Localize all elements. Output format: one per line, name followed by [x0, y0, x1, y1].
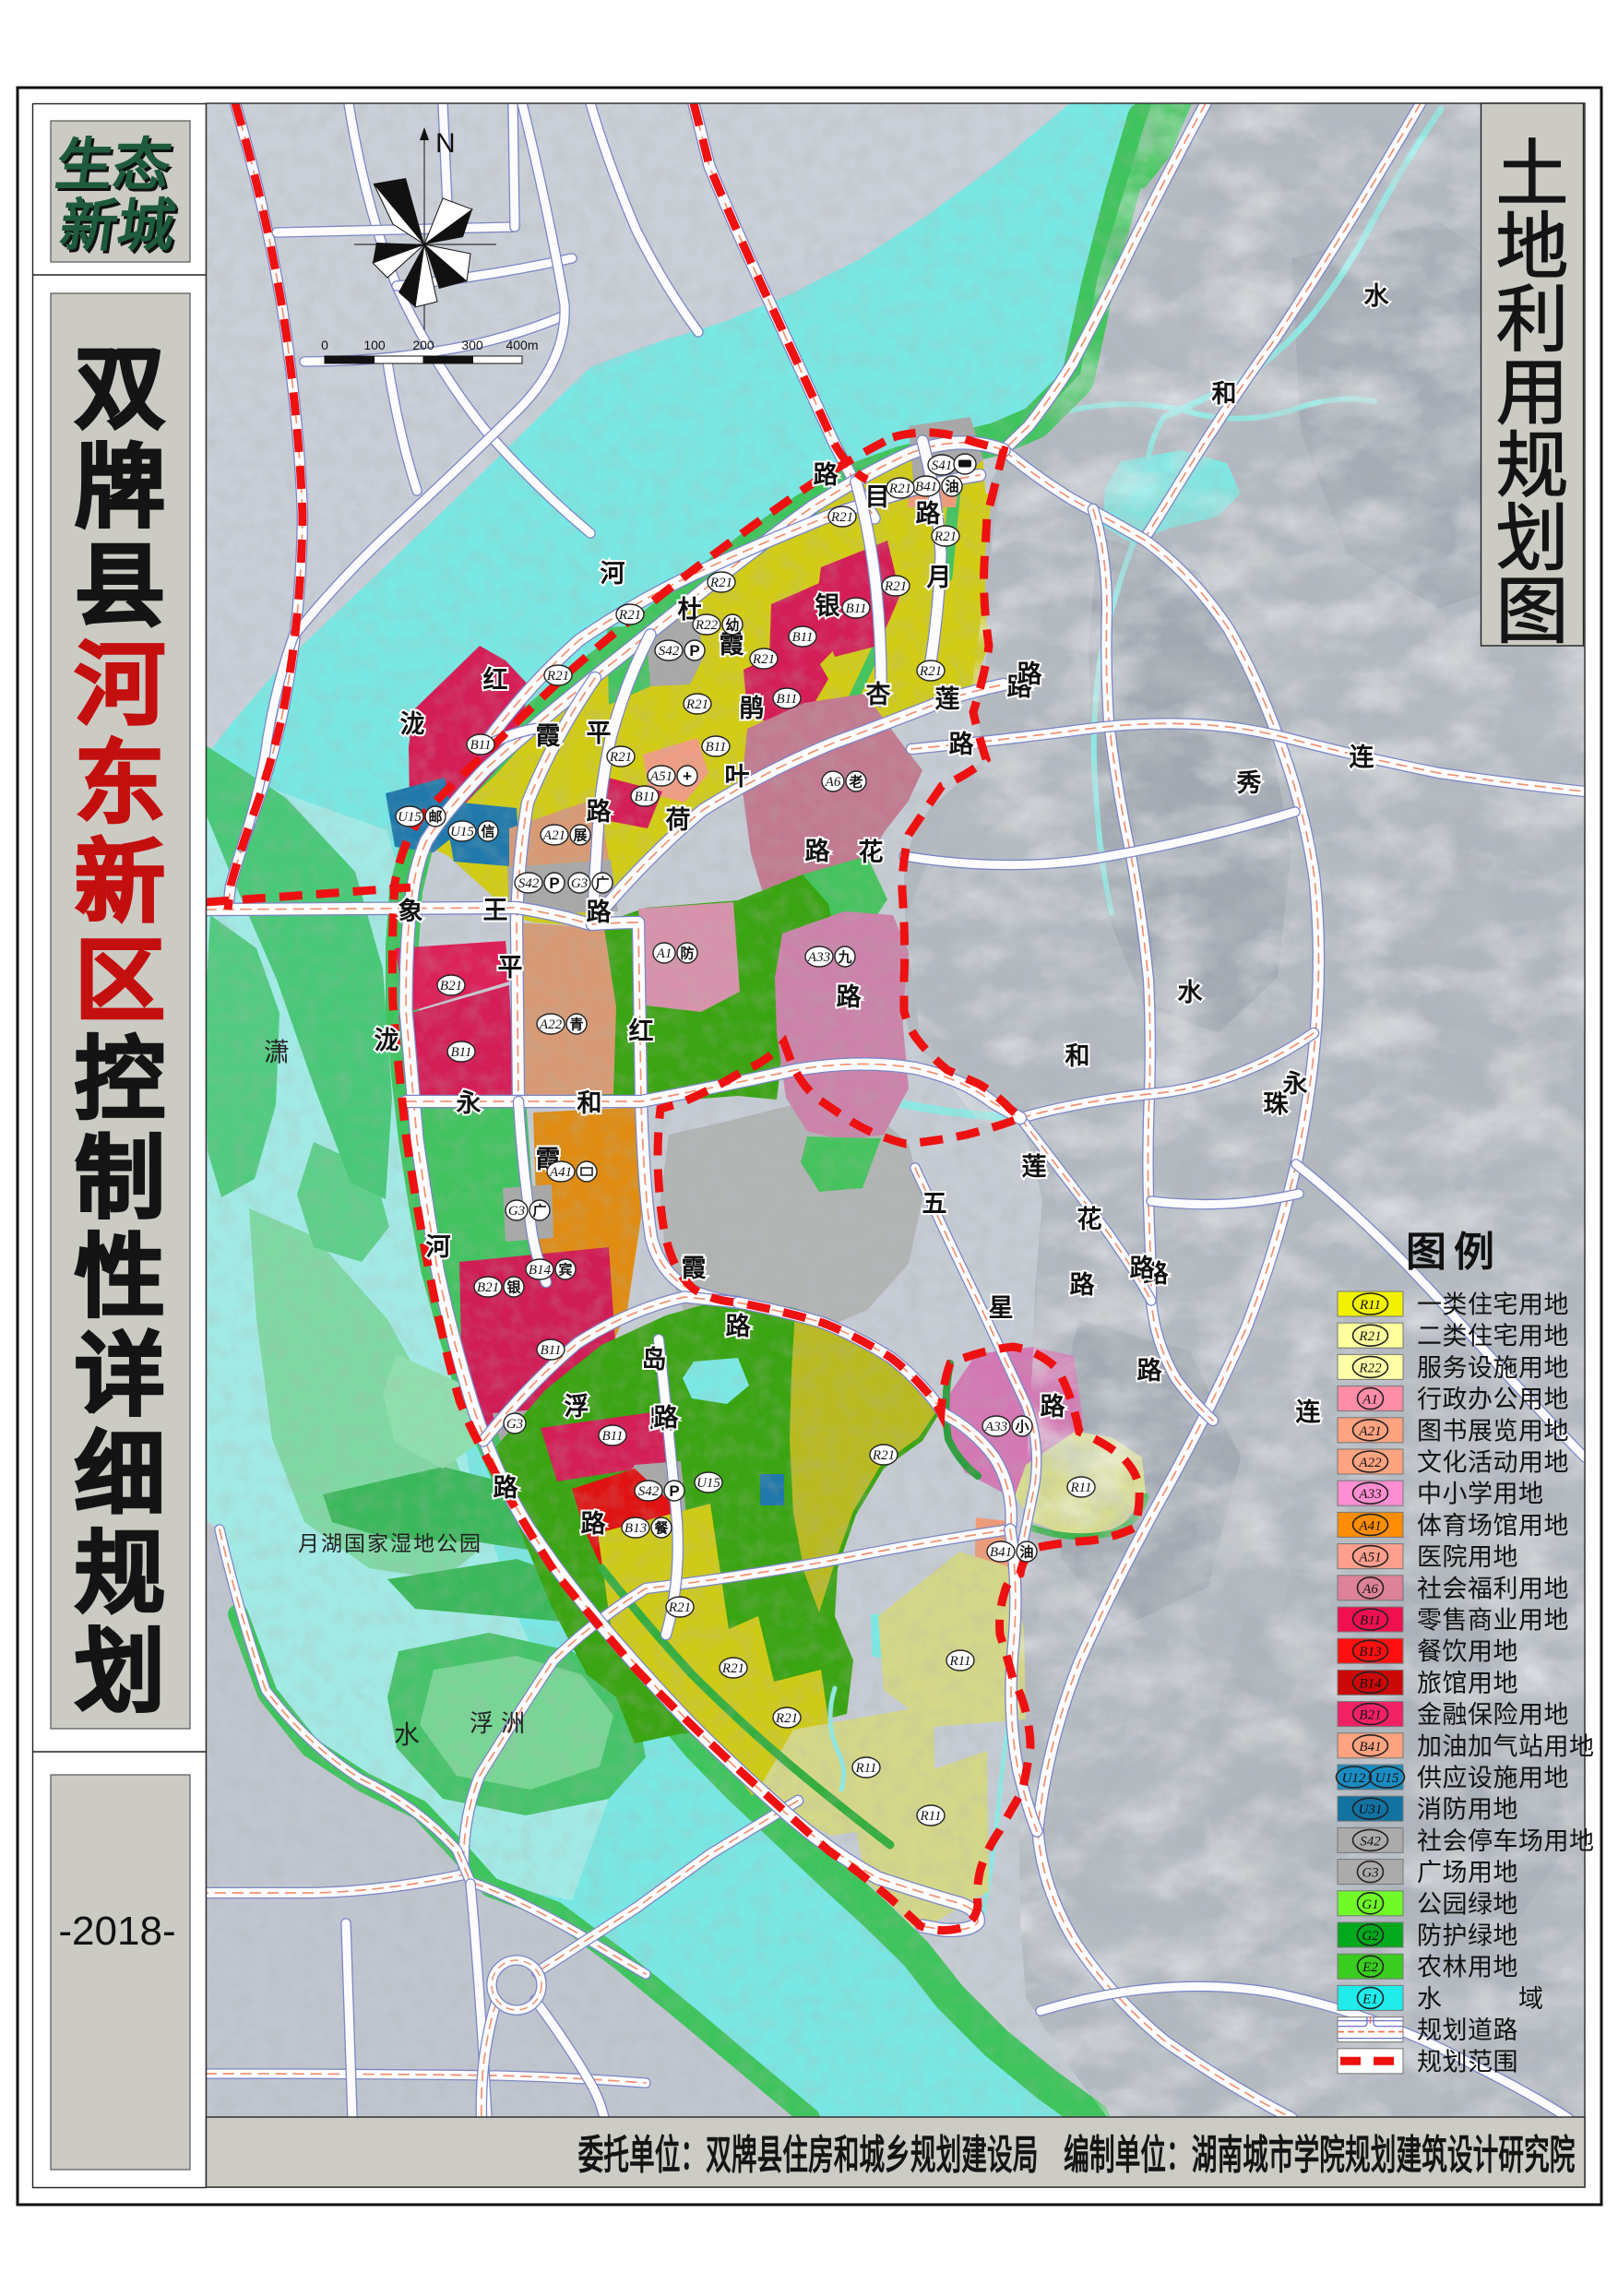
svg-text:信: 信	[481, 824, 494, 840]
svg-text:B41: B41	[1359, 1740, 1381, 1755]
svg-text:红: 红	[629, 1017, 654, 1045]
svg-text:A22: A22	[1358, 1456, 1382, 1470]
svg-text:P: P	[549, 874, 559, 892]
svg-text:B11: B11	[634, 790, 655, 804]
svg-text:R21: R21	[618, 608, 641, 623]
svg-text:B21: B21	[1359, 1708, 1381, 1723]
svg-text:细: 细	[75, 1423, 165, 1525]
svg-text:和: 和	[1065, 1042, 1090, 1070]
svg-text:农林用地: 农林用地	[1417, 1954, 1518, 1981]
svg-text:银: 银	[506, 1279, 521, 1296]
svg-text:连: 连	[1296, 1398, 1322, 1426]
svg-text:规划范围: 规划范围	[1417, 2048, 1518, 2076]
svg-text:油: 油	[1019, 1544, 1033, 1561]
svg-text:宾: 宾	[558, 1262, 572, 1279]
svg-text:幼: 幼	[725, 617, 739, 634]
svg-text:文化活动用地: 文化活动用地	[1417, 1449, 1569, 1477]
svg-text:路: 路	[1130, 1254, 1156, 1282]
svg-text:G3: G3	[506, 1417, 523, 1432]
svg-text:体育场馆用地: 体育场馆用地	[1417, 1512, 1569, 1540]
svg-text:B11: B11	[845, 601, 866, 616]
svg-text:200: 200	[412, 338, 434, 352]
svg-text:B41: B41	[915, 480, 937, 494]
svg-text:P: P	[669, 1482, 679, 1500]
svg-text:展: 展	[573, 828, 587, 844]
svg-text:B11: B11	[540, 1343, 561, 1358]
svg-text:服务设施用地: 服务设施用地	[1417, 1354, 1569, 1382]
svg-text:秀: 秀	[1236, 769, 1262, 797]
svg-text:餐饮用地: 餐饮用地	[1417, 1638, 1518, 1666]
svg-text:双: 双	[75, 338, 165, 439]
svg-text:九: 九	[837, 949, 851, 966]
svg-text:路: 路	[654, 1403, 680, 1432]
svg-text:路: 路	[587, 898, 613, 926]
svg-text:A6: A6	[825, 775, 841, 790]
svg-text:红: 红	[483, 665, 508, 694]
svg-text:A51: A51	[1358, 1551, 1381, 1565]
svg-text:R21: R21	[609, 750, 632, 765]
svg-text:N: N	[435, 128, 456, 159]
svg-text:叶: 叶	[725, 763, 750, 791]
svg-text:制: 制	[75, 1127, 165, 1229]
svg-text:R21: R21	[775, 1711, 798, 1726]
svg-text:+: +	[683, 767, 692, 785]
svg-text:医院用地: 医院用地	[1417, 1543, 1518, 1571]
svg-text:水: 水	[1364, 282, 1390, 310]
svg-text:地: 地	[1496, 206, 1569, 288]
svg-text:油: 油	[945, 479, 958, 495]
svg-text:新: 新	[75, 831, 165, 933]
svg-text:永: 永	[456, 1089, 482, 1117]
svg-text:加油加气站用地: 加油加气站用地	[1417, 1732, 1595, 1760]
svg-text:星: 星	[989, 1294, 1014, 1322]
svg-text:五: 五	[922, 1190, 947, 1218]
svg-text:二类住宅用地: 二类住宅用地	[1417, 1323, 1569, 1350]
svg-text:R22: R22	[695, 618, 719, 633]
svg-text:A51: A51	[649, 769, 672, 784]
svg-text:G2: G2	[1362, 1929, 1379, 1944]
svg-text:路: 路	[726, 1312, 752, 1340]
svg-text:中小学用地: 中小学用地	[1417, 1481, 1544, 1508]
svg-text:R21: R21	[685, 697, 708, 712]
svg-text:规: 规	[1496, 424, 1569, 506]
svg-text:S42: S42	[1360, 1834, 1381, 1849]
svg-text:广: 广	[595, 875, 609, 892]
svg-text:洲: 洲	[501, 1709, 525, 1737]
svg-text:路: 路	[1137, 1356, 1163, 1385]
svg-text:R11: R11	[919, 1809, 941, 1824]
svg-text:G3: G3	[508, 1204, 525, 1219]
svg-text:和: 和	[1212, 380, 1237, 408]
svg-text:土: 土	[1496, 133, 1569, 215]
svg-text:图书展览用地: 图书展览用地	[1417, 1417, 1569, 1445]
svg-text:路: 路	[1041, 1392, 1066, 1421]
svg-text:B14: B14	[1359, 1676, 1382, 1691]
svg-text:岛: 岛	[642, 1345, 667, 1374]
svg-text:王: 王	[483, 897, 508, 924]
svg-text:R21: R21	[721, 1661, 744, 1676]
svg-text:S41: S41	[932, 458, 953, 473]
svg-text:一类住宅用地: 一类住宅用地	[1417, 1291, 1569, 1319]
svg-text:银: 银	[815, 592, 840, 620]
svg-text:平: 平	[498, 954, 523, 981]
svg-text:R21: R21	[546, 669, 569, 684]
svg-text:月湖国家湿地公园: 月湖国家湿地公园	[298, 1531, 482, 1555]
svg-text:莲: 莲	[1022, 1153, 1047, 1181]
svg-text:性: 性	[75, 1226, 165, 1327]
svg-text:G3: G3	[571, 876, 588, 891]
svg-text:图例: 图例	[1406, 1230, 1502, 1275]
svg-text:P: P	[689, 642, 699, 660]
svg-text:G1: G1	[1362, 1897, 1378, 1912]
svg-text:象: 象	[399, 897, 423, 925]
svg-text:平: 平	[587, 720, 612, 747]
svg-text:划: 划	[75, 1621, 165, 1722]
svg-text:B13: B13	[625, 1521, 647, 1536]
svg-text:G3: G3	[1362, 1866, 1378, 1881]
svg-text:东: 东	[75, 732, 165, 834]
svg-text:0: 0	[321, 338, 328, 352]
svg-text:R21: R21	[830, 510, 853, 525]
svg-text:U31: U31	[1359, 1802, 1383, 1817]
svg-text:A33: A33	[984, 1420, 1007, 1434]
svg-text:A6: A6	[1362, 1582, 1378, 1597]
svg-text:邮: 邮	[428, 809, 442, 826]
svg-text:水 域: 水 域	[1417, 1985, 1544, 2013]
svg-text:B21: B21	[440, 979, 462, 993]
svg-text:浮: 浮	[470, 1709, 494, 1737]
svg-text:R11: R11	[1069, 1481, 1091, 1495]
svg-text:规: 规	[75, 1522, 165, 1624]
svg-text:旅馆用地: 旅馆用地	[1417, 1670, 1518, 1697]
svg-text:老: 老	[848, 774, 863, 791]
svg-text:B41: B41	[990, 1545, 1012, 1560]
svg-text:B13: B13	[1359, 1645, 1381, 1660]
svg-text:水: 水	[1178, 979, 1204, 1006]
svg-text:小: 小	[1015, 1420, 1029, 1435]
svg-text:U15: U15	[1375, 1771, 1399, 1786]
svg-text:社会福利用地: 社会福利用地	[1417, 1575, 1569, 1602]
svg-text:R11: R11	[854, 1761, 876, 1776]
svg-text:零售商业用地: 零售商业用地	[1417, 1607, 1569, 1635]
svg-text:委托单位：双牌县住房和城乡规划建设局 编制单位：湖南城市学院: 委托单位：双牌县住房和城乡规划建设局 编制单位：湖南城市学院规划建筑设计研究院	[578, 2133, 1576, 2178]
svg-text:泷: 泷	[375, 1027, 399, 1054]
svg-text:400m: 400m	[506, 338, 538, 352]
svg-text:消防用地: 消防用地	[1417, 1796, 1518, 1824]
svg-text:和: 和	[577, 1089, 602, 1117]
svg-text:河: 河	[426, 1233, 451, 1261]
svg-text:永: 永	[1282, 1070, 1308, 1098]
svg-text:B11: B11	[470, 738, 491, 753]
svg-text:河: 河	[601, 560, 625, 588]
svg-text:R21: R21	[709, 576, 732, 590]
svg-text:A41: A41	[549, 1165, 572, 1180]
svg-text:生态: 生态	[52, 134, 175, 197]
svg-text:霞: 霞	[682, 1255, 708, 1282]
svg-text:牌: 牌	[75, 436, 165, 538]
svg-text:霞: 霞	[536, 722, 562, 750]
svg-text:R21: R21	[668, 1600, 691, 1615]
svg-text:B11: B11	[791, 630, 813, 645]
svg-text:A33: A33	[1358, 1487, 1381, 1502]
svg-text:路: 路	[805, 837, 831, 865]
svg-text:路: 路	[837, 982, 863, 1011]
svg-text:路: 路	[1070, 1270, 1096, 1299]
svg-text:潇: 潇	[264, 1038, 290, 1066]
svg-text:B11: B11	[450, 1045, 471, 1060]
svg-text:B11: B11	[601, 1429, 623, 1444]
svg-text:广场用地: 广场用地	[1417, 1859, 1518, 1886]
svg-text:路: 路	[949, 730, 975, 758]
svg-text:U15: U15	[696, 1476, 720, 1491]
svg-text:社会停车场用地: 社会停车场用地	[1417, 1827, 1595, 1855]
svg-text:广: 广	[532, 1203, 546, 1219]
svg-text:A22: A22	[539, 1017, 563, 1032]
svg-text:公园绿地: 公园绿地	[1417, 1890, 1518, 1918]
svg-text:划: 划	[1496, 497, 1569, 579]
svg-text:A21: A21	[1358, 1424, 1381, 1439]
svg-text:河: 河	[75, 634, 165, 735]
svg-text:新城: 新城	[56, 195, 180, 258]
svg-text:-2018-: -2018-	[58, 1909, 175, 1954]
svg-text:路: 路	[587, 797, 613, 826]
svg-text:花: 花	[859, 839, 884, 866]
svg-text:B11: B11	[776, 692, 797, 707]
svg-text:E1: E1	[1362, 1992, 1378, 2006]
svg-text:县: 县	[75, 535, 165, 636]
svg-text:100: 100	[363, 338, 386, 352]
svg-text:B21: B21	[477, 1280, 499, 1295]
svg-text:B14: B14	[529, 1263, 552, 1278]
svg-text:A1: A1	[656, 946, 672, 961]
svg-text:路: 路	[814, 460, 839, 489]
svg-text:路: 路	[916, 499, 942, 528]
svg-text:月: 月	[926, 564, 952, 591]
svg-text:U15: U15	[450, 825, 474, 839]
svg-text:控: 控	[75, 1029, 165, 1130]
svg-text:R21: R21	[752, 652, 775, 667]
svg-text:路: 路	[1017, 660, 1043, 688]
svg-text:供应设施用地: 供应设施用地	[1417, 1765, 1569, 1792]
svg-text:杏: 杏	[866, 681, 891, 708]
svg-text:R21: R21	[872, 1448, 895, 1463]
svg-text:R21: R21	[888, 482, 911, 496]
svg-text:B11: B11	[1360, 1613, 1381, 1628]
svg-text:餐: 餐	[654, 1520, 669, 1537]
svg-text:用: 用	[1496, 351, 1569, 434]
svg-text:R11: R11	[948, 1654, 970, 1669]
svg-text:花: 花	[1077, 1206, 1102, 1233]
svg-text:详: 详	[75, 1325, 165, 1426]
svg-text:浮: 浮	[565, 1393, 589, 1421]
svg-text:区: 区	[75, 930, 165, 1031]
svg-text:防护绿地: 防护绿地	[1417, 1922, 1518, 1950]
svg-text:U15: U15	[398, 810, 422, 825]
svg-text:鹃: 鹃	[740, 694, 765, 722]
svg-text:青: 青	[569, 1017, 583, 1033]
svg-text:防: 防	[680, 946, 694, 962]
svg-text:R21: R21	[884, 579, 907, 594]
svg-text:金融保险用地: 金融保险用地	[1417, 1701, 1569, 1729]
svg-text:A33: A33	[807, 950, 830, 965]
svg-text:A21: A21	[542, 828, 565, 843]
svg-text:连: 连	[1350, 743, 1375, 771]
svg-text:S42: S42	[638, 1484, 660, 1499]
svg-text:A41: A41	[1358, 1518, 1381, 1533]
svg-text:R21: R21	[934, 529, 957, 544]
svg-text:路: 路	[581, 1509, 607, 1538]
svg-text:300: 300	[461, 338, 483, 352]
svg-text:行政办公用地: 行政办公用地	[1417, 1386, 1569, 1413]
svg-text:E2: E2	[1362, 1960, 1378, 1975]
svg-text:S42: S42	[518, 876, 540, 891]
svg-text:荷: 荷	[666, 806, 691, 834]
svg-text:R21: R21	[1358, 1329, 1381, 1344]
svg-text:U12: U12	[1342, 1771, 1366, 1786]
svg-text:路: 路	[494, 1473, 519, 1502]
svg-text:B11: B11	[705, 740, 726, 755]
svg-text:S42: S42	[659, 644, 680, 659]
svg-text:水: 水	[394, 1720, 420, 1749]
svg-text:利: 利	[1496, 279, 1569, 361]
svg-text:图: 图	[1496, 570, 1569, 652]
svg-text:R22: R22	[1358, 1361, 1382, 1375]
svg-text:R21: R21	[919, 664, 942, 679]
svg-text:规划道路: 规划道路	[1417, 2016, 1518, 2044]
svg-text:R11: R11	[1359, 1298, 1381, 1313]
svg-text:A1: A1	[1362, 1393, 1378, 1408]
svg-text:莲: 莲	[935, 685, 960, 713]
svg-text:泷: 泷	[400, 710, 425, 738]
